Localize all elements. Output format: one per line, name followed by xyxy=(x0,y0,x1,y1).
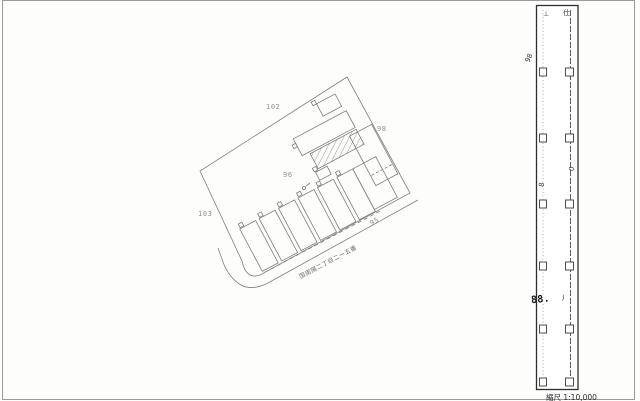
row-house xyxy=(279,200,317,251)
lot-label-95: 95 xyxy=(369,216,381,228)
parcel-boundary xyxy=(200,77,410,276)
building-knob xyxy=(297,191,302,196)
map-sheet-strip: ⊥ 仕 98 8 0 88. ) 縮尺 1:10,000 xyxy=(524,6,598,401)
parcel-drawing xyxy=(200,77,418,288)
cadastral-map-canvas: 102 98 96 103 95 国南陽二丁目二ー五番 ⊥ 仕 98 8 0 8… xyxy=(0,0,640,401)
lot-label-96: 96 xyxy=(283,171,293,179)
building-knob xyxy=(312,166,317,171)
building-knob xyxy=(292,143,297,148)
building-knob xyxy=(316,181,321,186)
lot-label-103: 103 xyxy=(198,210,212,218)
strip-glyph-top-left: ⊥ xyxy=(543,10,549,18)
building-knob xyxy=(238,222,243,227)
row-house xyxy=(259,210,297,261)
building xyxy=(353,157,398,210)
building-cluster-upper xyxy=(278,82,397,211)
building-knob xyxy=(335,171,340,176)
scanned-map-page: 102 98 96 103 95 国南陽二丁目二ー五番 ⊥ 仕 98 8 0 8… xyxy=(0,0,640,401)
survey-mark xyxy=(302,183,310,190)
row-house xyxy=(240,221,278,272)
building-knob xyxy=(277,202,282,207)
strip-glyph-98: 98 xyxy=(524,52,535,63)
lot-label-102: 102 xyxy=(266,103,280,111)
scale-label: 縮尺 1:10,000 xyxy=(546,392,597,401)
lot-label-98: 98 xyxy=(377,125,387,133)
row-house xyxy=(298,190,336,241)
row-house xyxy=(337,169,375,220)
building xyxy=(317,94,342,116)
building-dashed-line xyxy=(372,165,392,176)
stamp-88: 88. xyxy=(530,293,550,306)
strip-glyph-top-right: 仕 xyxy=(563,8,570,17)
row-house xyxy=(317,179,355,230)
building-knob xyxy=(311,100,316,105)
building-knob xyxy=(258,212,263,217)
